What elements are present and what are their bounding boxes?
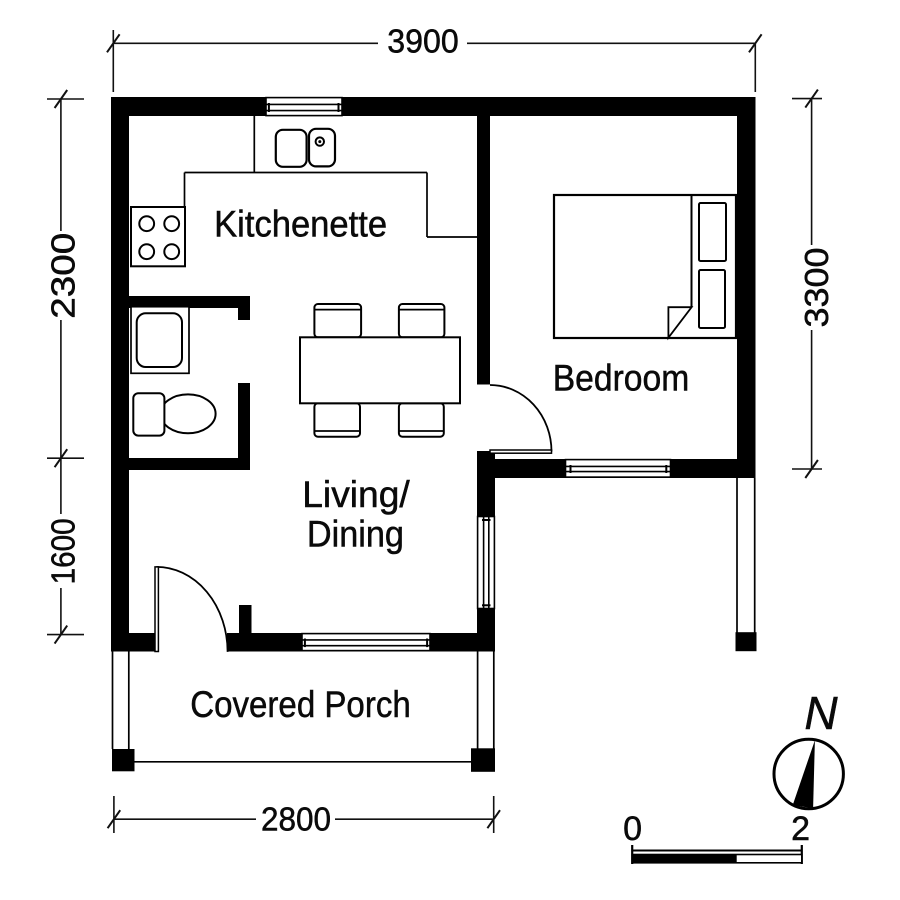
svg-text:N: N: [804, 687, 838, 739]
svg-text:0: 0: [623, 810, 642, 848]
svg-text:2800: 2800: [261, 801, 331, 838]
svg-text:1600: 1600: [45, 518, 82, 584]
svg-text:Bedroom: Bedroom: [553, 357, 690, 398]
svg-text:3900: 3900: [387, 22, 459, 59]
svg-text:2: 2: [791, 810, 810, 848]
svg-text:Kitchenette: Kitchenette: [214, 204, 387, 245]
svg-text:3300: 3300: [798, 248, 835, 328]
svg-text:Living/: Living/: [302, 474, 410, 515]
svg-text:2300: 2300: [45, 233, 82, 319]
svg-text:Dining: Dining: [307, 514, 404, 555]
svg-text:Covered Porch: Covered Porch: [190, 684, 411, 725]
